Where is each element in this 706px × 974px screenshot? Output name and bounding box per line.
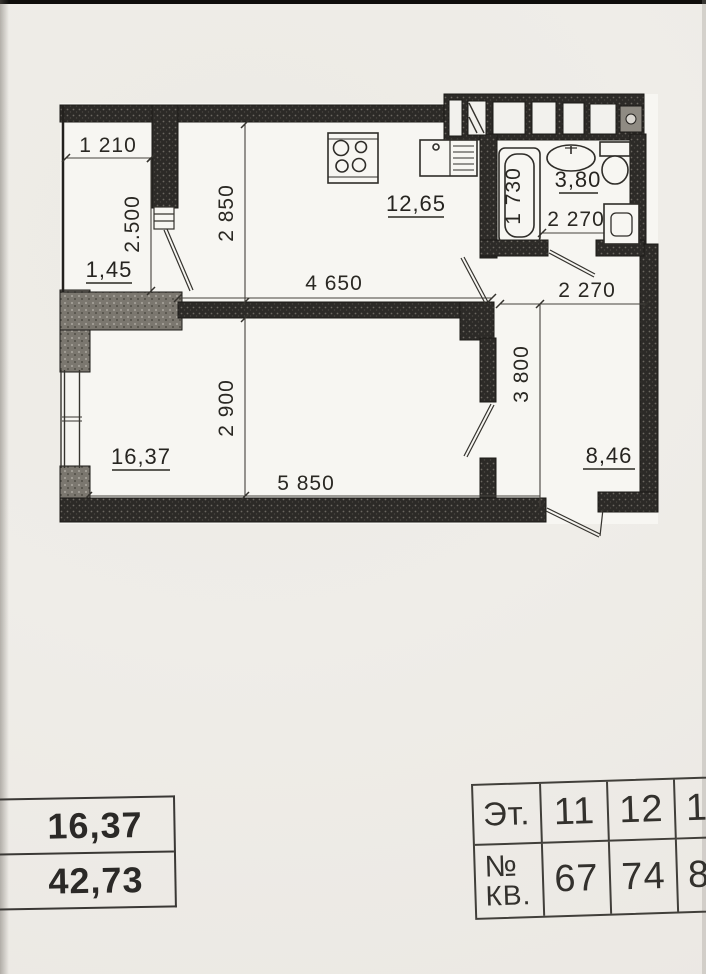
wall-top (60, 105, 490, 122)
stove-icon (328, 133, 378, 183)
wall-bottom (60, 498, 546, 522)
vent-slot (590, 104, 616, 134)
area-summary-table: 16,37 42,73 (0, 795, 177, 911)
wall-kitchen-hall-block (460, 302, 494, 340)
dim-kitchen-width: 4 650 (305, 272, 363, 295)
wall-bottom-right-stub (598, 492, 658, 512)
flat-value: 8 (677, 836, 706, 912)
floor-value: 12 (608, 780, 677, 842)
wall-living-hall-lower (480, 458, 496, 500)
wall-kitchen-living-left (60, 292, 182, 330)
wall-kitchen-living-band (178, 302, 470, 318)
flat-value: 67 (543, 842, 612, 916)
kitchen-sink-icon (420, 140, 477, 176)
flat-label-kv: КВ. (485, 881, 532, 910)
vent-slot (493, 102, 525, 134)
dim-hall-width: 2 270 (558, 279, 616, 302)
flat-value: 74 (610, 840, 679, 914)
washing-machine-icon (604, 204, 639, 244)
summary-value-living: 16,37 (47, 803, 143, 847)
dim-loggia-height: 2.500 (121, 195, 144, 253)
vent-shafts (449, 100, 642, 136)
floor-value: 1 (675, 776, 706, 840)
wall-hall-right (640, 244, 658, 500)
toilet-icon (600, 142, 630, 184)
summary-row: 16,37 (0, 797, 174, 856)
washbasin-icon (547, 145, 595, 171)
area-loggia: 1,45 (86, 257, 133, 282)
area-living: 16,37 (111, 444, 171, 469)
area-hall: 8,46 (586, 443, 633, 468)
dim-hall-height: 3 800 (510, 345, 533, 403)
flat-row-label: № КВ. (475, 844, 545, 918)
area-kitchen: 12,65 (386, 191, 446, 216)
vent-slot (532, 102, 556, 134)
scanned-floor-plan-page: 1 210 2.500 2 850 4 650 1 730 2 270 2 27… (0, 0, 706, 974)
dim-kitchen-height: 2 850 (215, 184, 238, 242)
wall-bath-left (480, 134, 497, 258)
dim-bath-width: 2 270 (547, 208, 605, 231)
summary-value-total: 42,73 (48, 858, 144, 902)
dim-loggia-width: 1 210 (79, 134, 137, 157)
flat-label-no: № (484, 852, 518, 883)
floor-value: 11 (541, 782, 610, 844)
dim-living-height: 2 900 (215, 379, 238, 437)
wall-loggia-right (152, 105, 178, 208)
vent-hole-icon (626, 114, 636, 124)
floor-apartment-table: Эт. 11 12 1 № КВ. 67 74 8 (471, 774, 706, 920)
loggia-door-frame (154, 207, 174, 229)
vent-slot (563, 103, 584, 134)
wall-living-hall-upper (480, 338, 496, 402)
vent-slot (449, 100, 462, 136)
summary-row: 42,73 (0, 852, 175, 909)
dim-living-width: 5 850 (277, 472, 335, 495)
floor-row-label: Эт. (473, 784, 543, 846)
